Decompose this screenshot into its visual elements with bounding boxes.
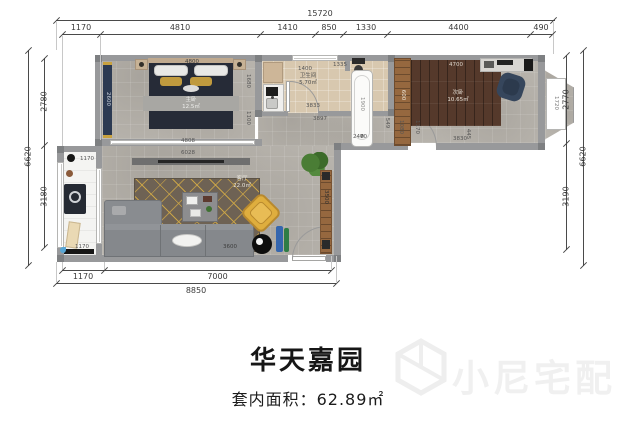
corridor-dim: 3897: [300, 116, 340, 122]
dim-right-seg: 2770: [562, 78, 571, 122]
mat-blue: [276, 226, 283, 252]
bed-cushion: [160, 77, 182, 86]
bathroom-window: [292, 55, 338, 61]
door-dim: 1170: [414, 112, 420, 142]
bathroom-label: 卫生间 5.70㎡: [288, 73, 328, 86]
bedroom2-floor-dim: 3830: [440, 136, 480, 142]
bedroom2-area: 10.65㎡: [436, 97, 480, 104]
water-drop-icon: [60, 247, 66, 253]
dim-line-bottom-outer: [56, 283, 336, 284]
tv-icon: [158, 160, 224, 163]
extension-line: [100, 36, 101, 140]
extension-line: [56, 262, 57, 282]
door-dim: 1080: [398, 112, 404, 142]
cooktop-icon: [266, 87, 278, 96]
sofa-pillow: [112, 206, 126, 215]
dim-left-total: 6620: [24, 135, 33, 179]
wall-pillar: [334, 143, 341, 150]
wall-pillar: [57, 146, 64, 153]
dim-left-seg: 2780: [40, 80, 49, 124]
platform-dim: 4700: [436, 62, 476, 68]
extension-line: [56, 22, 57, 50]
wardrobe-cap: [103, 62, 112, 65]
sofa-seam: [160, 225, 161, 256]
wall-pillar: [95, 139, 102, 146]
washing-machine-door: [69, 191, 81, 203]
toilet-tank: [352, 58, 365, 64]
book-icon: [203, 196, 212, 202]
wall-pillar: [538, 143, 545, 150]
sofa-dim: 3600: [212, 244, 248, 250]
bed-pillow: [194, 65, 228, 76]
living-label: 客厅 22.0㎡: [222, 176, 262, 189]
wardrobe-cap: [103, 135, 112, 138]
plant-pot-icon: [206, 206, 212, 212]
wall-right-upper: [538, 55, 545, 150]
dim-bottom-total: 8850: [56, 286, 336, 295]
bedroom2-label: 次卧 10.65㎡: [436, 90, 480, 103]
wardrobe2-dim: 600: [400, 80, 406, 110]
dim-right-seg: 3190: [562, 175, 571, 219]
dim-bottom-seg: 7000: [104, 272, 331, 281]
monitor-icon: [497, 60, 513, 65]
living-area: 22.0㎡: [222, 183, 262, 190]
tub-dim: 1900: [359, 89, 365, 119]
kitchen-dim: 1400: [290, 66, 320, 72]
balcony-slider: [96, 168, 102, 244]
dim-top-seg: 1330: [345, 23, 387, 32]
speaker-icon: [322, 240, 330, 249]
dim-top-seg: 1410: [260, 23, 315, 32]
extension-line: [336, 256, 337, 282]
wall-pillar: [57, 255, 64, 262]
wall-bedroom1-right: [255, 55, 262, 116]
upper-cabinet: [263, 62, 283, 83]
bedroom1-label: 主卧 12.5㎡: [151, 97, 231, 110]
dim-top-seg: 490: [526, 23, 556, 32]
faucet-icon: [271, 96, 274, 99]
bed-tray: [183, 85, 199, 92]
lamp-icon: [139, 62, 144, 67]
bedroom1-side-dim: 1680: [245, 66, 251, 96]
mat-green: [284, 228, 289, 252]
tv-dim: 6028: [168, 150, 208, 156]
speaker-icon: [322, 172, 330, 180]
sink-icon: [266, 98, 278, 109]
wardrobe-dim: 2600: [105, 84, 111, 114]
eight-ball-dot: [256, 238, 263, 245]
dim-top-seg: 4400: [387, 23, 530, 32]
bedroom1-area: 12.5㎡: [151, 104, 231, 111]
extension-line: [331, 256, 332, 269]
bathroom-area: 5.70㎡: [288, 80, 328, 87]
printer-icon: [524, 59, 533, 71]
tray-icon: [190, 209, 201, 217]
dim-top-seg: 1170: [62, 23, 100, 32]
balcony-dim-top: 1170: [77, 156, 97, 162]
extension-line: [62, 36, 63, 146]
dim-line-top-outer: [56, 20, 555, 21]
floor-plan-canvas: 2600 主卧 12.5㎡ 4800 4808 1680 1100 卫生间 5.…: [0, 0, 640, 432]
wall-pillar: [255, 55, 262, 62]
toilet-dim: 1335: [328, 62, 352, 68]
dim-bottom-seg: 1170: [62, 272, 104, 281]
bath-width-dim: 3833: [295, 103, 331, 109]
dim-top-seg: 4810: [100, 23, 260, 32]
magazine-icon: [186, 196, 198, 205]
dim-left-seg: 3180: [40, 175, 49, 219]
balcony-window: [57, 162, 64, 248]
corridor-dim: 2470: [340, 134, 380, 140]
laptop-icon: [484, 61, 494, 68]
watermark-text: 小尼宅配: [452, 348, 616, 402]
dim-right-total: 6620: [579, 135, 588, 179]
bedroom1-side-dim: 1100: [245, 103, 251, 133]
cabinet-dim: 3500: [323, 182, 329, 212]
bay-dim: 1720: [553, 88, 559, 118]
dim-line-top-inner: [62, 34, 552, 35]
bed-pillow: [154, 65, 188, 76]
vent-icon: [67, 154, 75, 162]
balcony-dim-bottom: 1170: [72, 244, 92, 250]
watermark-logo-icon: [392, 338, 450, 396]
bed-dim-top: 4800: [172, 59, 212, 65]
wall-upper-bottom-b: [436, 143, 545, 150]
lamp-icon: [237, 62, 242, 67]
side-tray: [172, 234, 202, 247]
eight-ball: [252, 234, 272, 254]
sofa-back: [105, 224, 253, 230]
dim-top-seg: 850: [313, 23, 345, 32]
wall-pillar: [538, 55, 545, 62]
sofa-seam: [205, 225, 206, 256]
wall-pillar: [255, 110, 262, 117]
pot-icon: [66, 170, 73, 177]
window-dim: 4808: [168, 138, 208, 144]
corridor-dim: 549: [384, 108, 390, 138]
wall-right-lower: [334, 150, 341, 262]
dim-top-total: 15720: [280, 9, 360, 18]
bedroom2-side-dim: 445: [465, 119, 471, 149]
